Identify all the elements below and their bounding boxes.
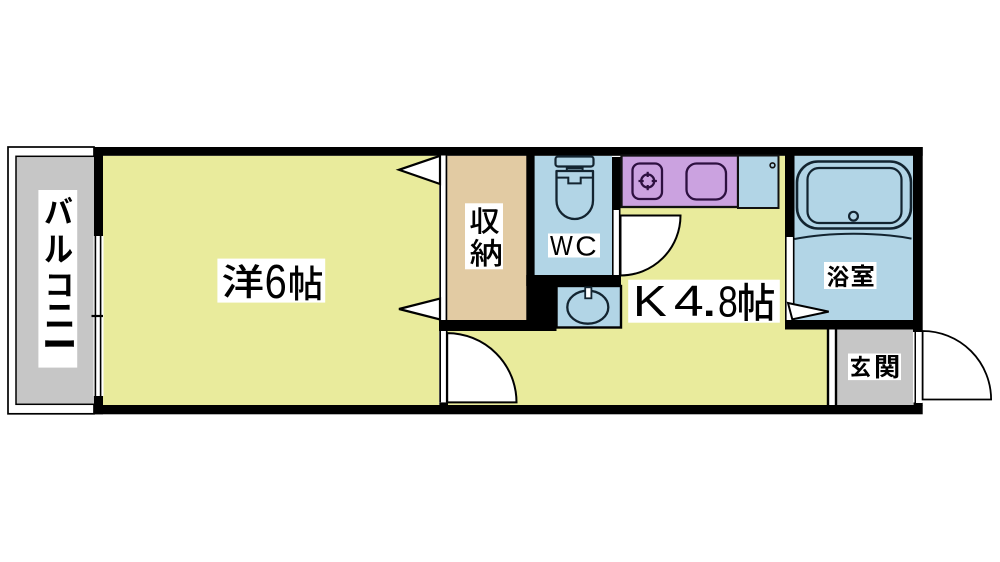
svg-text:W: W <box>550 232 573 262</box>
svg-text:6: 6 <box>265 255 287 308</box>
svg-text:K: K <box>633 277 667 326</box>
svg-text:8: 8 <box>718 278 738 326</box>
svg-text:4: 4 <box>674 277 704 325</box>
svg-text:C: C <box>575 232 596 263</box>
